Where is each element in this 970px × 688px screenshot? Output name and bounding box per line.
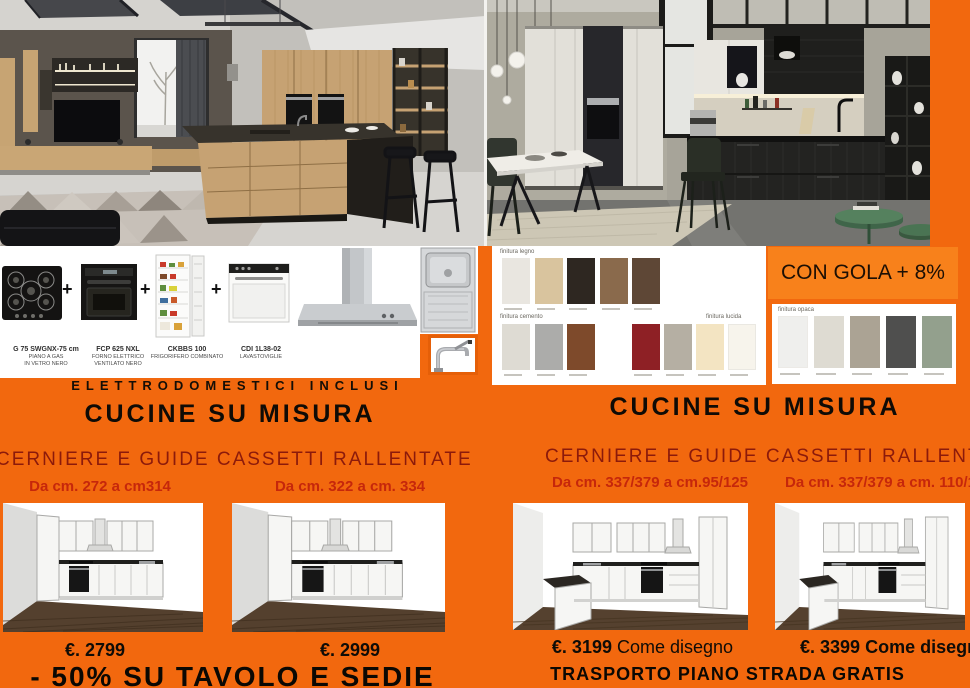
right-price-2: €. 3399 Come disegno [800, 637, 970, 658]
swatch-caption-mark [504, 374, 522, 376]
appliance-bar: + + + [0, 246, 420, 378]
sink-image [418, 246, 478, 334]
plus-icon: + [62, 279, 73, 300]
left-price-1: €. 2799 [10, 640, 180, 661]
finish-swatch [778, 316, 808, 368]
swatch-caption-mark [569, 308, 587, 310]
finish-swatch [632, 324, 660, 370]
price-note: Come disegno [865, 637, 970, 657]
right-title: CUCINE SU MISURA [560, 393, 950, 422]
faucet-image [431, 338, 475, 372]
left-kitchen-photo-art [0, 0, 485, 246]
swatch-caption-mark [888, 373, 908, 375]
swatch-caption-mark [537, 374, 555, 376]
appliance-desc: VENTILATO NERO [76, 361, 160, 368]
finish-group-label: finitura opaca [778, 307, 814, 313]
swatch-caption-mark [698, 374, 716, 376]
sink-card [418, 246, 478, 334]
finish-swatch [535, 258, 563, 304]
right-promo: TRASPORTO PIANO STRADA GRATIS [490, 664, 965, 685]
appliance-desc: LAVASTOVIGLIE [220, 354, 302, 361]
kitchen-render-2 [232, 503, 445, 632]
left-title: CUCINE SU MISURA [0, 400, 460, 429]
fridge-image [152, 254, 208, 338]
finish-swatch [535, 324, 563, 370]
finish-swatch [696, 324, 724, 370]
plus-icon: + [140, 279, 151, 300]
swatch-caption-mark [569, 374, 587, 376]
left-subtitle: CERNIERE E GUIDE CASSETTI RALLENTATE [0, 449, 473, 471]
finish-swatch [600, 258, 628, 304]
appliance-label: CDI 1L38-02 LAVASTOVIGLIE [220, 346, 302, 361]
finish-swatch [886, 316, 916, 368]
faucet-card [428, 335, 478, 375]
swatch-caption-mark [852, 373, 872, 375]
swatch-caption-mark [504, 308, 522, 310]
left-kitchen-photo [0, 0, 485, 246]
finishes-panel-main: finitura legno finitura cemento finitura… [492, 246, 766, 385]
price-value: €. 3199 [552, 637, 612, 657]
kitchen-promo-flyer: + + + [0, 0, 970, 688]
oven-image [79, 262, 139, 322]
price-value: €. 3399 [800, 637, 860, 657]
dishwasher-image [227, 262, 291, 324]
swatch-caption-mark [780, 373, 800, 375]
right-dimension-1: Da cm. 337/379 a cm.95/125 [530, 474, 770, 491]
left-dimension-1: Da cm. 272 a cm314 [10, 478, 190, 495]
left-dimension-2: Da cm. 322 a cm. 334 [255, 478, 445, 495]
finish-swatch [922, 316, 952, 368]
included-banner: ELETTRODOMESTICI INCLUSI [0, 378, 475, 393]
finish-swatch [664, 324, 692, 370]
finish-swatch [850, 316, 880, 368]
finish-swatch [502, 324, 530, 370]
kitchen-render-3 [513, 503, 748, 630]
finish-swatch [567, 258, 595, 304]
finish-group-label: finitura cemento [500, 314, 543, 320]
appliance-model: CDI 1L38-02 [220, 346, 302, 354]
swatch-caption-mark [666, 374, 684, 376]
swatch-caption-mark [924, 373, 944, 375]
gas-cooktop-image [1, 262, 63, 324]
swatch-caption-mark [730, 374, 748, 376]
finish-swatch [728, 324, 756, 370]
finish-group-label: finitura lucida [706, 314, 741, 320]
plus-icon: + [211, 279, 222, 300]
finish-swatch [567, 324, 595, 370]
finishes-panel-opaca: finitura opaca [772, 304, 956, 384]
kitchen-render-4 [775, 503, 965, 630]
right-kitchen-photo [487, 0, 930, 246]
finish-swatch [632, 258, 660, 304]
swatch-caption-mark [537, 308, 555, 310]
right-kitchen-photo-art [487, 0, 930, 246]
swatch-caption-mark [602, 308, 620, 310]
right-subtitle: CERNIERE E GUIDE CASSETTI RALLENTATE [545, 446, 970, 468]
finish-swatch [502, 258, 530, 304]
left-promo: - 50% SU TAVOLO E SEDIE [0, 661, 465, 688]
swatch-caption-mark [634, 308, 652, 310]
finish-group-label: finitura legno [500, 249, 534, 255]
right-price-1: €. 3199 Come disegno [525, 637, 760, 658]
swatch-caption-mark [634, 374, 652, 376]
price-note: Come disegno [617, 637, 733, 657]
hood-image [298, 248, 418, 340]
swatch-caption-mark [816, 373, 836, 375]
right-dimension-2: Da cm. 337/379 a cm. 110/1 [785, 474, 970, 491]
gola-badge: CON GOLA + 8% [768, 247, 958, 299]
left-price-2: €. 2999 [260, 640, 440, 661]
kitchen-render-1 [3, 503, 203, 632]
finish-swatch [814, 316, 844, 368]
